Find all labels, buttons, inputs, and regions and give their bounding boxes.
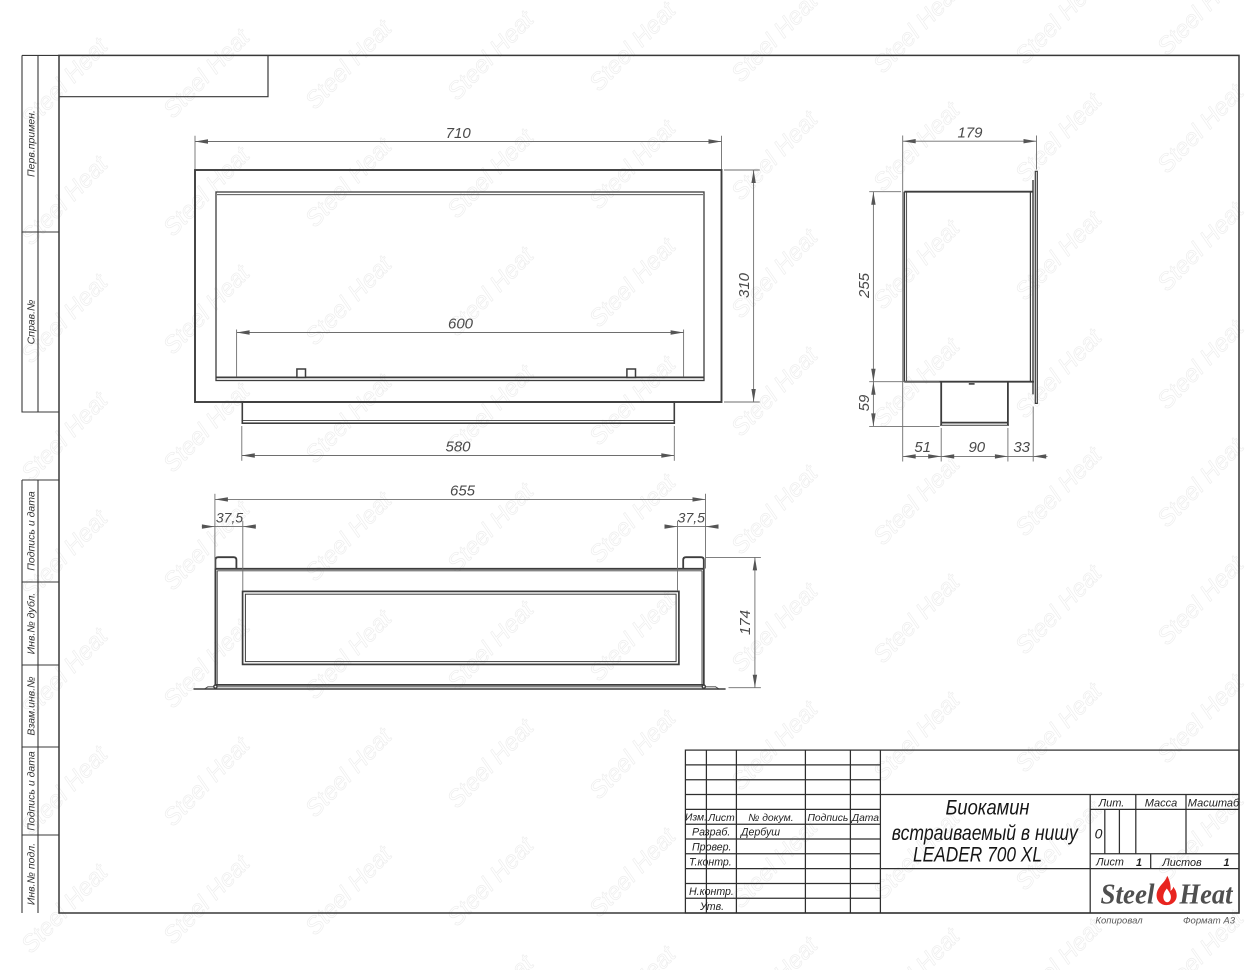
svg-text:Инв.№ подл.: Инв.№ подл. [26, 843, 38, 905]
svg-text:Heat: Heat [1179, 880, 1234, 911]
svg-text:Steel Heat: Steel Heat [158, 613, 256, 713]
svg-text:174: 174 [737, 610, 754, 635]
svg-text:310: 310 [736, 272, 753, 298]
svg-text:1: 1 [1136, 857, 1142, 869]
svg-text:Утв.: Утв. [699, 901, 724, 913]
svg-text:Steel Heat: Steel Heat [1152, 78, 1250, 178]
svg-text:Steel Heat: Steel Heat [584, 232, 682, 332]
svg-text:655: 655 [450, 483, 476, 500]
svg-text:Steel Heat: Steel Heat [584, 350, 682, 450]
svg-text:Steel Heat: Steel Heat [726, 931, 824, 970]
svg-text:Подпись: Подпись [807, 813, 848, 824]
svg-text:580: 580 [445, 438, 471, 455]
svg-text:Steel Heat: Steel Heat [868, 450, 966, 550]
svg-text:Steel Heat: Steel Heat [726, 0, 824, 87]
svg-text:Инв.№ дубл.: Инв.№ дубл. [26, 593, 38, 655]
svg-text:37,5: 37,5 [678, 509, 705, 525]
svg-text:Провер.: Провер. [692, 842, 731, 854]
svg-text:59: 59 [856, 394, 873, 411]
svg-text:Steel Heat: Steel Heat [1010, 323, 1108, 423]
svg-text:Steel Heat: Steel Heat [1010, 0, 1108, 69]
svg-text:Steel Heat: Steel Heat [1152, 314, 1250, 414]
svg-text:Steel Heat: Steel Heat [300, 486, 398, 586]
svg-text:0: 0 [1095, 826, 1103, 842]
svg-text:Steel Heat: Steel Heat [584, 704, 682, 804]
svg-text:Steel Heat: Steel Heat [584, 0, 682, 96]
svg-text:Лит.: Лит. [1098, 797, 1125, 809]
svg-text:Steel Heat: Steel Heat [584, 940, 682, 970]
svg-text:Steel Heat: Steel Heat [1152, 432, 1250, 532]
svg-text:Формат А3: Формат А3 [1183, 915, 1236, 926]
svg-text:Steel Heat: Steel Heat [1152, 668, 1250, 768]
svg-text:Steel Heat: Steel Heat [300, 722, 398, 822]
svg-text:Steel Heat: Steel Heat [868, 96, 966, 196]
svg-text:179: 179 [957, 125, 983, 142]
svg-text:Steel Heat: Steel Heat [300, 368, 398, 468]
svg-text:Справ.№: Справ.№ [26, 300, 38, 345]
svg-text:Steel Heat: Steel Heat [584, 822, 682, 922]
svg-text:Подпись и дата: Подпись и дата [26, 751, 38, 831]
svg-text:Steel Heat: Steel Heat [16, 386, 114, 486]
svg-text:Изм.: Изм. [685, 813, 707, 824]
svg-text:Steel Heat: Steel Heat [868, 568, 966, 668]
svg-text:Steel Heat: Steel Heat [584, 114, 682, 214]
svg-text:Листов: Листов [1161, 857, 1202, 869]
svg-text:Н.контр.: Н.контр. [689, 886, 734, 898]
svg-text:№ докум.: № докум. [748, 813, 793, 824]
svg-text:Разраб.: Разраб. [692, 827, 730, 839]
svg-text:LEADER 700 XL: LEADER 700 XL [913, 844, 1042, 867]
svg-text:Steel Heat: Steel Heat [726, 695, 824, 795]
svg-text:Steel Heat: Steel Heat [158, 731, 256, 831]
svg-text:Steel Heat: Steel Heat [726, 105, 824, 205]
svg-text:Steel: Steel [1101, 880, 1155, 911]
svg-text:Steel Heat: Steel Heat [868, 0, 966, 78]
svg-text:Steel Heat: Steel Heat [868, 214, 966, 314]
svg-text:600: 600 [448, 315, 474, 332]
svg-text:255: 255 [856, 272, 873, 299]
svg-text:Биокамин: Биокамин [946, 797, 1030, 820]
svg-text:Подпись и дата: Подпись и дата [26, 491, 38, 571]
svg-text:Steel Heat: Steel Heat [1010, 559, 1108, 659]
svg-text:Steel Heat: Steel Heat [1010, 677, 1108, 777]
svg-text:Steel Heat: Steel Heat [1152, 904, 1250, 970]
svg-text:Steel Heat: Steel Heat [442, 595, 540, 695]
svg-text:37,5: 37,5 [216, 509, 243, 525]
svg-text:1: 1 [1223, 857, 1229, 869]
svg-text:Steel Heat: Steel Heat [158, 259, 256, 359]
svg-text:Steel Heat: Steel Heat [584, 468, 682, 568]
svg-text:Steel Heat: Steel Heat [300, 132, 398, 232]
svg-text:Лист: Лист [1095, 857, 1124, 869]
svg-text:Steel Heat: Steel Heat [442, 713, 540, 813]
svg-text:Steel Heat: Steel Heat [1010, 913, 1108, 970]
svg-text:Steel Heat: Steel Heat [442, 949, 540, 970]
svg-text:33: 33 [1013, 439, 1030, 456]
svg-text:Лист: Лист [707, 813, 735, 824]
svg-text:Копировал: Копировал [1095, 915, 1143, 926]
svg-text:Steel Heat: Steel Heat [300, 840, 398, 940]
svg-text:Steel Heat: Steel Heat [300, 14, 398, 114]
svg-text:Дербуш: Дербуш [740, 827, 780, 839]
svg-text:710: 710 [446, 125, 472, 142]
svg-text:Steel Heat: Steel Heat [1152, 196, 1250, 296]
svg-text:Масса: Масса [1145, 798, 1178, 810]
svg-text:Steel Heat: Steel Heat [726, 341, 824, 441]
svg-text:Steel Heat: Steel Heat [584, 586, 682, 686]
svg-text:Steel Heat: Steel Heat [158, 141, 256, 241]
svg-text:Steel Heat: Steel Heat [158, 23, 256, 123]
svg-text:Steel Heat: Steel Heat [300, 250, 398, 350]
svg-text:Steel Heat: Steel Heat [1152, 0, 1250, 60]
svg-text:Steel Heat: Steel Heat [442, 831, 540, 931]
svg-text:Steel Heat: Steel Heat [1010, 205, 1108, 305]
svg-text:Взам.инв.№: Взам.инв.№ [26, 676, 38, 735]
svg-text:Steel Heat: Steel Heat [726, 459, 824, 559]
svg-text:Steel Heat: Steel Heat [868, 922, 966, 970]
svg-text:Т.контр.: Т.контр. [689, 856, 732, 868]
svg-text:Steel Heat: Steel Heat [1152, 550, 1250, 650]
svg-text:Дата: Дата [851, 813, 879, 824]
svg-text:Steel Heat: Steel Heat [1010, 87, 1108, 187]
svg-text:встраиваемый в нишу: встраиваемый в нишу [892, 822, 1079, 845]
svg-text:Steel Heat: Steel Heat [158, 849, 256, 949]
svg-text:51: 51 [914, 439, 931, 456]
svg-text:90: 90 [968, 439, 985, 456]
svg-text:Steel Heat: Steel Heat [868, 686, 966, 786]
svg-text:Перв.примен.: Перв.примен. [26, 110, 38, 177]
svg-text:Масштаб: Масштаб [1188, 798, 1240, 810]
